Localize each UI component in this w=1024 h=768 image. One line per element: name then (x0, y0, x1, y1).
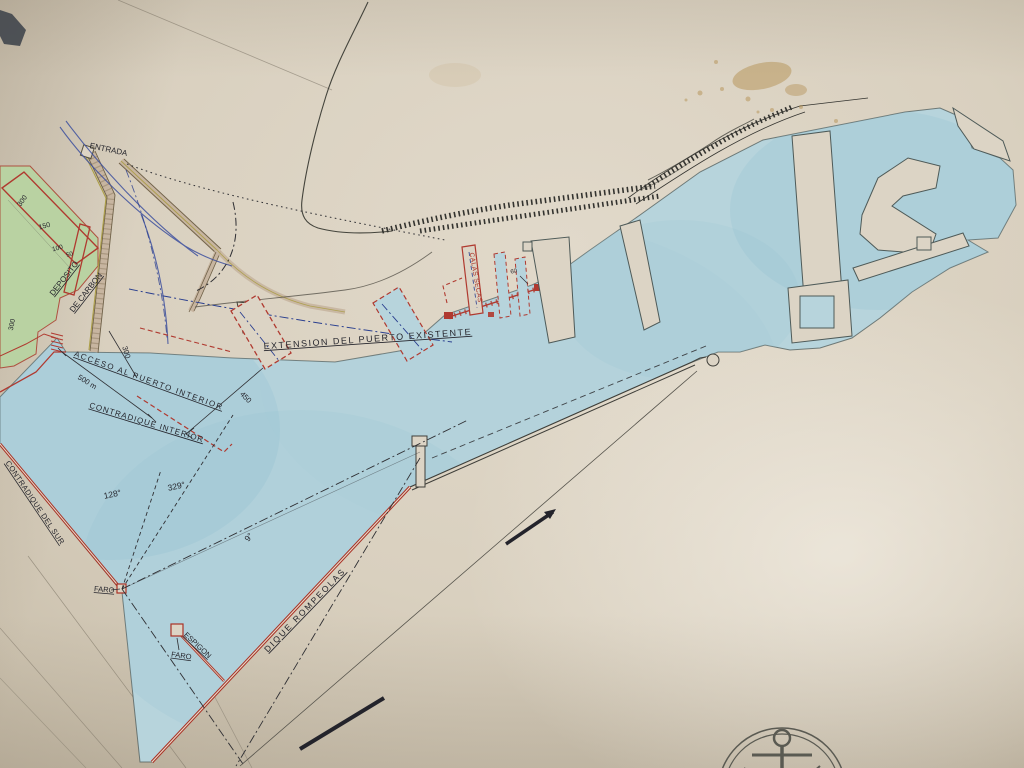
label-faro-1: FARO (94, 584, 115, 595)
corner-mark (0, 10, 26, 46)
small-dock-basin (800, 296, 834, 328)
map-svg: ENTRADA DEPOSITO DE CARBON 300 150 100 5… (0, 0, 1024, 768)
paper-stains (429, 57, 838, 123)
harbor-plan-photo: ENTRADA DEPOSITO DE CARBON 300 150 100 5… (0, 0, 1024, 768)
small-islet (917, 237, 931, 250)
coal-depot-area (0, 166, 98, 368)
anchor-icon (718, 728, 846, 768)
